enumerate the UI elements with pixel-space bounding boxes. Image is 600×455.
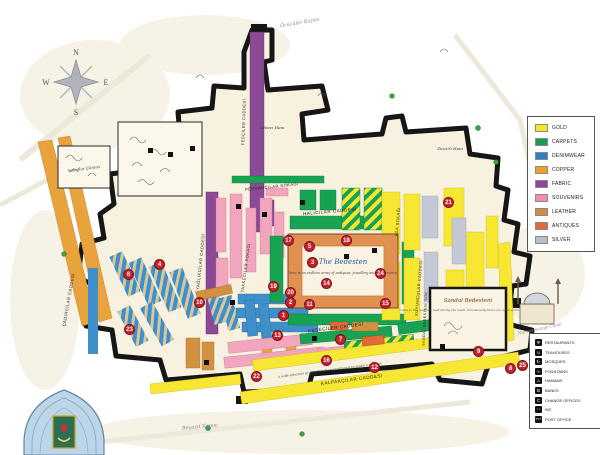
gate-illustration	[24, 390, 104, 455]
facility-item-fountains: ≈FOUNTAINS	[535, 368, 600, 375]
map-canvas: The Bedesten here is an endless array of…	[0, 0, 600, 455]
legend-item-souvenirs: SOUVENIRS	[535, 194, 592, 202]
facility-label: CHANGE OFFICES	[545, 398, 581, 403]
oruculer-gate-label: Örücüler Kapısı	[279, 16, 320, 30]
legend-item-antiques: ANTIQUES	[535, 222, 592, 230]
legend-item-fabric: FABRIC	[535, 180, 592, 188]
facility-item-wc: ♂♀WC	[535, 406, 600, 413]
map-marker-12: 12	[369, 362, 380, 373]
copper-swatch	[535, 166, 548, 174]
sandal-title: Sandal Bedesteni	[444, 298, 493, 304]
facility-label: POST OFFICE	[545, 417, 572, 422]
facility-label: FOUNTAINS	[545, 369, 568, 374]
map-marker-21: 21	[443, 197, 454, 208]
map-marker-5: 5	[304, 241, 315, 252]
legend-label: FABRIC	[552, 181, 571, 187]
map-marker-23: 23	[124, 324, 135, 335]
compass-north: N	[73, 48, 79, 57]
map-marker-18: 18	[341, 235, 352, 246]
facility-label: TEAHOUSES	[545, 350, 570, 355]
map-marker-19: 19	[268, 281, 279, 292]
sandal-note: Come to the auctions held during the wee…	[400, 308, 537, 312]
legend-item-copper: COPPER	[535, 166, 592, 174]
antiques-swatch	[535, 222, 548, 230]
map-marker-7: 7	[335, 334, 346, 345]
teahouses-icon: ∪	[535, 349, 542, 356]
fabric-swatch	[535, 180, 548, 188]
silver-swatch	[535, 236, 548, 244]
change-offices-icon: C	[535, 397, 542, 404]
gold-swatch	[535, 124, 548, 132]
legend-label: SILVER	[552, 237, 571, 243]
carpets-swatch	[535, 138, 548, 146]
map-marker-6: 6	[123, 269, 134, 280]
mosques-icon: ☪	[535, 358, 542, 365]
map-marker-22: 22	[251, 371, 262, 382]
restaurants-icon: Ψ	[535, 339, 542, 346]
facility-label: MOSQUES	[545, 359, 565, 364]
map-marker-20: 20	[285, 287, 296, 298]
wc-icon: ♂♀	[535, 406, 542, 413]
hamams-icon: ♨	[535, 377, 542, 384]
category-legend: GOLD CARPETS DENIMWEAR COPPER FABRIC SOU…	[527, 116, 595, 252]
legend-item-carpets: CARPETS	[535, 138, 592, 146]
legend-label: CARPETS	[552, 139, 577, 145]
compass-south: S	[74, 108, 78, 117]
legend-label: ANTIQUES	[552, 223, 579, 229]
facility-item-post-office: PTTPOST OFFICE	[535, 416, 600, 423]
map-marker-4: 4	[154, 259, 165, 270]
facility-item-mosques: ☪MOSQUES	[535, 358, 600, 365]
map-marker-1: 1	[278, 310, 289, 321]
facility-item-change-offices: CCHANGE OFFICES	[535, 397, 600, 404]
facility-label: RESTAURANTS	[545, 340, 574, 345]
map-marker-15: 15	[380, 298, 391, 309]
facilities-legend: ΨRESTAURANTS ∪TEAHOUSES ☪MOSQUES ≈FOUNTA…	[529, 333, 600, 429]
map-marker-9: 9	[473, 346, 484, 357]
bedesten-title: The Bedesten	[319, 258, 368, 266]
souvenirs-swatch	[535, 194, 548, 202]
banks-icon: B	[535, 387, 542, 394]
facility-item-restaurants: ΨRESTAURANTS	[535, 339, 600, 346]
legend-label: GOLD	[552, 125, 567, 131]
legend-label: SOUVENIRS	[552, 195, 583, 201]
post-office-icon: PTT	[535, 416, 542, 423]
legend-item-leather: LEATHER	[535, 208, 592, 216]
legend-label: COPPER	[552, 167, 574, 173]
zincirli-han-label: Zincirli Hanı	[436, 146, 463, 151]
map-marker-24: 24	[375, 268, 386, 279]
legend-label: LEATHER	[552, 209, 576, 215]
legend-item-gold: GOLD	[535, 124, 592, 132]
facility-label: BANKS	[545, 388, 559, 393]
map-marker-3: 3	[307, 257, 318, 268]
bazaar-map-page: The Bedesten here is an endless array of…	[0, 0, 600, 455]
legend-item-silver: SILVER	[535, 236, 592, 244]
map-marker-10: 10	[194, 297, 205, 308]
map-marker-16: 16	[321, 355, 332, 366]
legend-label: DENIMWEAR	[552, 153, 585, 159]
facility-item-hamams: ♨HAMAMS	[535, 377, 600, 384]
legend-item-denimwear: DENIMWEAR	[535, 152, 592, 160]
map-marker-14: 14	[321, 278, 332, 289]
map-marker-11: 11	[304, 299, 315, 310]
denimwear-swatch	[535, 152, 548, 160]
facility-item-teahouses: ∪TEAHOUSES	[535, 349, 600, 356]
map-marker-8: 8	[505, 363, 516, 374]
map-marker-25: 25	[517, 360, 528, 371]
map-marker-2: 2	[285, 297, 296, 308]
map-marker-13: 13	[272, 330, 283, 341]
facility-label: WC	[545, 407, 552, 412]
cebeci-han-label: Cebeci Hanı	[260, 125, 286, 130]
fountains-icon: ≈	[535, 368, 542, 375]
leather-swatch	[535, 208, 548, 216]
facility-label: HAMAMS	[545, 378, 563, 383]
facility-item-banks: BBANKS	[535, 387, 600, 394]
map-marker-17: 17	[283, 235, 294, 246]
compass-west: W	[42, 78, 50, 87]
compass-east: E	[104, 78, 109, 87]
